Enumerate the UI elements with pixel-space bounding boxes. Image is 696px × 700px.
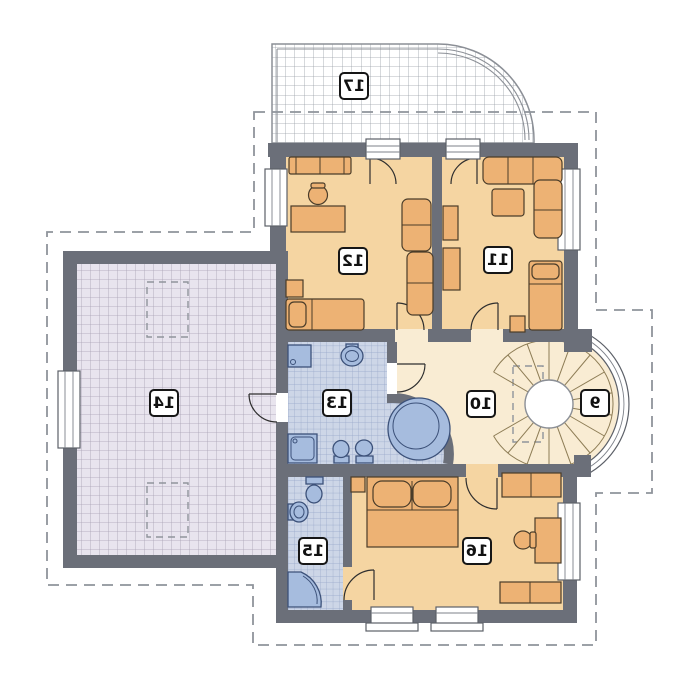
room-label-16: 16	[462, 537, 492, 565]
room-label-14: 14	[149, 389, 179, 417]
room-label-13: 13	[322, 389, 352, 417]
corner-bathtub-icon	[388, 398, 450, 460]
terrace-door-frame-11	[446, 139, 480, 159]
coffee-table-icon	[492, 189, 524, 216]
cabinet-icon	[443, 206, 458, 240]
wall-14-bottom	[63, 555, 288, 568]
room-label-10: 10	[466, 390, 496, 418]
bed-icon	[529, 261, 562, 330]
room-label-17: 17	[339, 72, 369, 100]
double-bed-icon	[367, 477, 458, 547]
stair-void	[525, 380, 573, 428]
nightstand-icon	[510, 316, 525, 332]
washbasin-icon	[288, 502, 308, 522]
wall-14-top	[63, 251, 288, 264]
cabinet-icon	[443, 248, 460, 290]
floor-plan: 9 10 11 12 13 14 15 16 17	[0, 0, 696, 700]
desk-chair-icon	[309, 183, 328, 205]
desk-chair-icon	[514, 531, 536, 549]
wardrobe-icon	[502, 473, 561, 497]
armchair-icon	[402, 199, 431, 251]
bidet-icon	[333, 441, 349, 464]
nightstand-icon	[351, 477, 365, 492]
terrace-floor	[272, 44, 534, 143]
terrace	[272, 44, 534, 143]
window-room-14-left	[58, 371, 80, 448]
desk-icon	[535, 518, 561, 563]
terrace-door-frame-12	[366, 139, 400, 159]
sofa-icon	[289, 157, 351, 174]
floor-plan-drawing	[0, 0, 696, 700]
nightstand-icon	[286, 280, 303, 297]
toilet-icon	[306, 477, 323, 503]
window-room-12-left	[265, 169, 287, 226]
room-label-9: 9	[580, 389, 610, 417]
wall-bottom-lower	[276, 610, 577, 623]
room-label-15: 15	[298, 537, 328, 565]
bed-icon	[286, 299, 364, 330]
shower-icon	[288, 434, 317, 463]
washing-machine-icon	[288, 345, 311, 367]
window-room-16-bottom-1	[366, 607, 418, 631]
toilet-icon	[356, 440, 374, 463]
wall-top	[268, 143, 578, 157]
room-label-12: 12	[338, 247, 368, 275]
window-room-16-bottom-2	[431, 607, 483, 631]
desk-icon	[291, 206, 345, 232]
wall-bay-stub-top	[564, 329, 592, 352]
wardrobe-icon	[500, 582, 561, 603]
loveseat-icon	[407, 252, 433, 315]
room-label-11: 11	[483, 246, 513, 274]
